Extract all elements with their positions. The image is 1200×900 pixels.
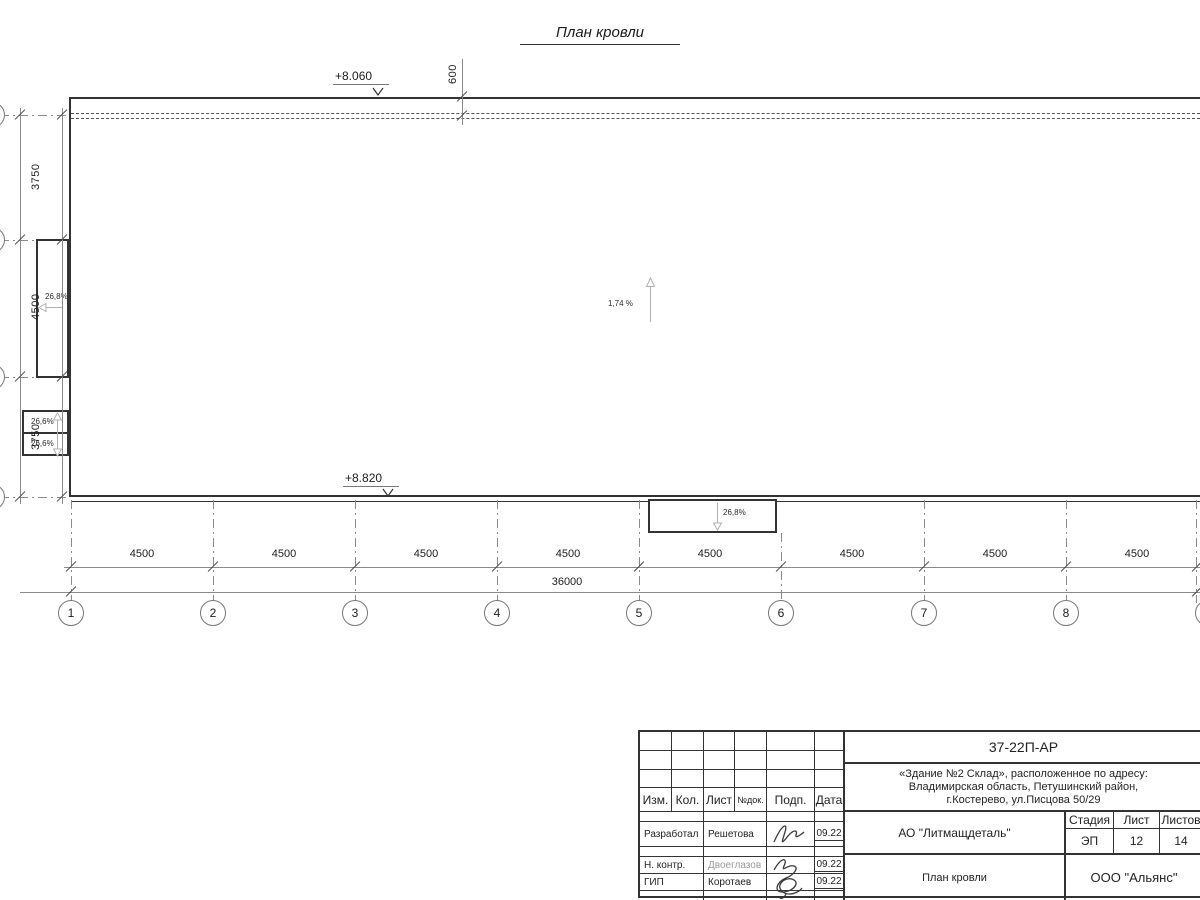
- elevation-top-label: +8.060: [333, 69, 389, 85]
- bottom-dim-label: 4500: [548, 548, 588, 560]
- slope-arrow-down-icon: [712, 522, 723, 531]
- staff-cell: [640, 812, 704, 822]
- sheet-value: 12: [1114, 829, 1160, 855]
- grid-bubble: 2: [200, 600, 226, 626]
- revision-cell: [815, 732, 845, 751]
- slope-arrow-line: [650, 284, 651, 322]
- bottom-dim-label: 4500: [1117, 548, 1157, 560]
- staff-cell: [815, 847, 845, 857]
- grid-bubble: 4: [484, 600, 510, 626]
- slope-arrow-line: [57, 416, 58, 450]
- elevation-arrow-icon: [381, 488, 395, 498]
- staff-role: ГИП: [640, 874, 704, 891]
- grid-bubble: 3: [342, 600, 368, 626]
- revision-cell: [640, 770, 672, 788]
- address-line: «Здание №2 Склад», расположенное по адре…: [899, 768, 1148, 781]
- revision-cell: [672, 751, 704, 770]
- left-total-dim-line: [20, 108, 21, 504]
- staff-cell: [767, 847, 815, 857]
- col-header-ndok: №док.: [735, 788, 767, 812]
- bottom-dim-label: 4500: [690, 548, 730, 560]
- revision-cell: [735, 770, 767, 788]
- revision-cell: [735, 732, 767, 751]
- staff-name: Двоеглазов: [704, 857, 767, 874]
- staff-date: 09.22: [815, 857, 845, 874]
- grid-bubble: 6: [768, 600, 794, 626]
- bottom-dim-label: 4500: [406, 548, 446, 560]
- left-dim-label: 4500: [30, 277, 42, 337]
- bottom-dim-label: 4500: [975, 548, 1015, 560]
- staff-date: 09.22: [815, 822, 845, 847]
- revision-cell: [815, 770, 845, 788]
- staff-cell: [704, 812, 767, 822]
- grid-bubble: 9: [1195, 600, 1200, 626]
- revision-cell: [767, 770, 815, 788]
- organization-name: ООО "Альянс": [1091, 870, 1178, 885]
- sheets-value: 14: [1160, 829, 1200, 855]
- dim-600-label: 600: [447, 58, 459, 90]
- stage-header: Стадия: [1066, 812, 1114, 829]
- staff-signature-cell: [767, 857, 815, 874]
- staff-cell: [815, 891, 845, 900]
- revision-cell: [640, 732, 672, 751]
- col-header-izm: Изм.: [640, 788, 672, 812]
- staff-name: Решетова: [704, 822, 767, 847]
- grid-column-line: [639, 500, 640, 603]
- left-total-dim-label: 12000: [0, 248, 3, 312]
- bottom-dim-label: 4500: [832, 548, 872, 560]
- staff-cell: [815, 812, 845, 822]
- staff-role: Разработал: [640, 822, 704, 847]
- drawing-title: План кровли: [520, 24, 680, 45]
- doc-number: 37-22П-АР: [989, 739, 1058, 755]
- sheet-header: Лист: [1114, 812, 1160, 829]
- sheets-header: Листов: [1160, 812, 1200, 829]
- grid-bubble-partial: [0, 484, 5, 510]
- staff-cell: [640, 847, 704, 857]
- grid-bubble: 8: [1053, 600, 1079, 626]
- col-header-podp: Подп.: [767, 788, 815, 812]
- staff-role: Н. контр.: [640, 857, 704, 874]
- title-block: Изм. Кол. Лист №док. Подп. Дата Разработ…: [638, 730, 1200, 898]
- left-canopy-slope-label: 26,8%: [45, 292, 68, 301]
- slope-arrow-line: [45, 307, 63, 308]
- grid-bubble: 1: [58, 600, 84, 626]
- revision-cell: [767, 732, 815, 751]
- slope-arrow-up-icon: [645, 277, 656, 288]
- bottom-canopy-slope-label: 26,8%: [723, 508, 746, 517]
- staff-signature-cell: [767, 822, 815, 847]
- grid-column-line: [71, 500, 72, 603]
- staff-cell: [704, 891, 767, 900]
- bottom-total-dim-line: [20, 592, 1200, 593]
- col-header-data: Дата: [815, 788, 845, 812]
- company-name: АО "Литмащдеталь": [898, 826, 1010, 840]
- revision-cell: [815, 751, 845, 770]
- elevation-bottom-label: +8.820: [343, 471, 399, 487]
- company-cell: АО "Литмащдеталь": [845, 812, 1066, 855]
- grid-column-line: [924, 500, 925, 603]
- bottom-dim-line: [64, 567, 1200, 568]
- elevation-arrow-icon: [371, 87, 385, 97]
- staff-cell: [767, 891, 815, 900]
- roof-inner-bottom-line: [71, 501, 1200, 502]
- staff-date: 09.22: [815, 874, 845, 891]
- address-line: г.Костерево, ул.Писцова 50/29: [947, 794, 1101, 807]
- grid-bubble: 7: [911, 600, 937, 626]
- staff-cell: [704, 847, 767, 857]
- address-line: Владимирская область, Петушинский район,: [909, 781, 1138, 794]
- bottom-dim-label: 4500: [122, 548, 162, 560]
- grid-column-line: [497, 500, 498, 603]
- grid-bubble-partial: [0, 102, 5, 128]
- revision-cell: [640, 751, 672, 770]
- staff-name: Коротаев: [704, 874, 767, 891]
- grid-column-line: [213, 500, 214, 603]
- bottom-dim-label: 4500: [264, 548, 304, 560]
- sheet-title: План кровли: [922, 872, 987, 884]
- roof-outline: [69, 97, 1200, 497]
- col-header-kol: Кол.: [672, 788, 704, 812]
- project-address-cell: «Здание №2 Склад», расположенное по адре…: [845, 764, 1200, 812]
- col-header-list: Лист: [704, 788, 735, 812]
- left-dim-line: [62, 108, 63, 504]
- grid-column-line: [1066, 500, 1067, 603]
- staff-cell: [640, 891, 704, 900]
- organization-cell: ООО "Альянс": [1066, 855, 1200, 900]
- left-dim-label: 3750: [30, 147, 42, 207]
- bottom-total-dim-label: 36000: [543, 576, 591, 588]
- roof-plan-drawing: План кровли 600 +8.060 +8.820 1,74 % 26,…: [0, 0, 1200, 900]
- grid-bubble-partial: [0, 364, 5, 390]
- revision-cell: [672, 732, 704, 751]
- grid-column-line: [355, 500, 356, 603]
- left-dim-label: 3750: [30, 407, 42, 467]
- revision-cell: [704, 732, 735, 751]
- grid-column-line: [1196, 500, 1197, 603]
- revision-cell: [672, 770, 704, 788]
- revision-cell: [767, 751, 815, 770]
- revision-cell: [704, 770, 735, 788]
- parapet-dashed-line: [71, 113, 1200, 114]
- doc-number-cell: 37-22П-АР: [845, 732, 1200, 764]
- revision-cell: [704, 751, 735, 770]
- slope-center-label: 1,74 %: [608, 299, 633, 308]
- staff-cell: [767, 812, 815, 822]
- revision-cell: [735, 751, 767, 770]
- stage-value: ЭП: [1066, 829, 1114, 855]
- grid-bubble: 5: [626, 600, 652, 626]
- parapet-dashed-line: [71, 118, 1200, 119]
- staff-signature-cell: [767, 874, 815, 891]
- sheet-title-cell: План кровли: [845, 855, 1066, 900]
